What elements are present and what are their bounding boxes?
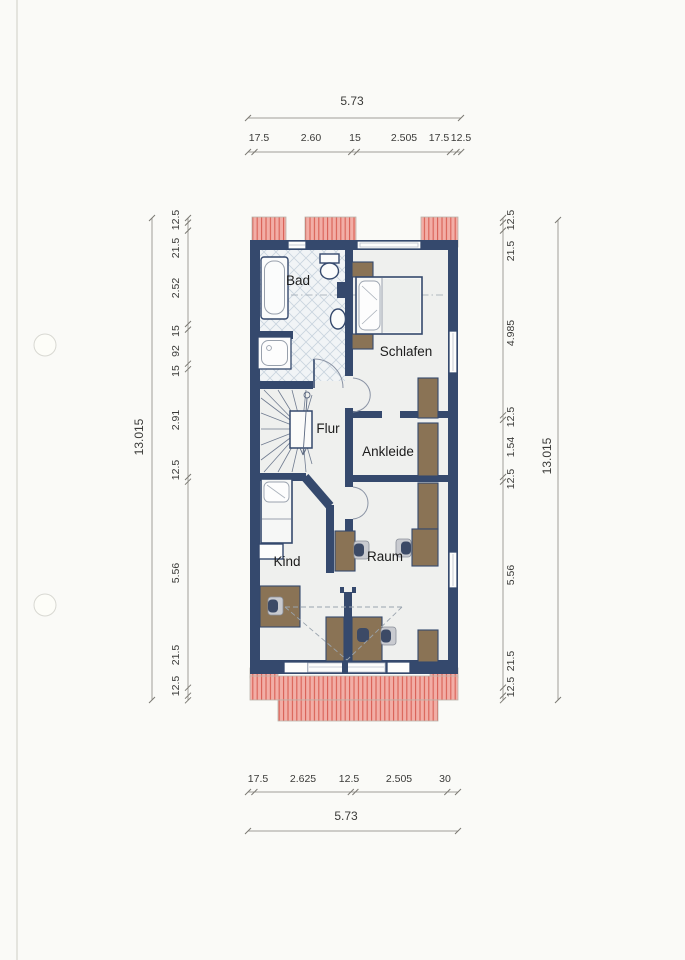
dim-label: 17.5 xyxy=(248,773,269,785)
nightstand-bottom xyxy=(352,334,373,349)
bed-blanket xyxy=(382,279,420,332)
wall-ankleide-south xyxy=(345,475,458,482)
nightstand-top xyxy=(352,262,373,277)
hole-punch-bottom xyxy=(34,594,56,616)
dim-label: 12.5 xyxy=(505,407,517,428)
wall-pier xyxy=(337,282,353,298)
wall-kind-raum xyxy=(326,505,334,573)
room-label-schlafen: Schlafen xyxy=(380,344,433,359)
dim-label: 92 xyxy=(170,345,182,357)
dim-total-left: 13.015 xyxy=(132,418,146,455)
partition-hook-right xyxy=(352,587,356,593)
room-label-raum: Raum xyxy=(367,549,403,564)
dim-label: 12.5 xyxy=(505,677,517,698)
wardrobe-ankleide xyxy=(418,423,438,476)
dim-label: 2.52 xyxy=(170,278,182,299)
dim-label: 21.5 xyxy=(505,241,517,262)
raum-chair-glyph xyxy=(357,628,369,642)
dim-label: 17.5 xyxy=(429,132,450,144)
dim-label: 12.5 xyxy=(170,676,182,697)
window-south-frame-right xyxy=(387,662,410,673)
raum-desk-center-chair xyxy=(381,627,396,645)
scanned-floor-plan-sheet: 5.73 17.5 2.60 15 2.505 17.5 12.5 13.015… xyxy=(0,0,685,960)
window-south-mullion xyxy=(342,661,348,674)
dim-label: 2.60 xyxy=(301,132,322,144)
partition-hook-left xyxy=(340,587,344,593)
dim-label: 12.5 xyxy=(170,460,182,481)
dim-total-right: 13.015 xyxy=(540,437,554,474)
dim-label: 5.56 xyxy=(505,565,517,586)
dim-label: 17.5 xyxy=(249,132,270,144)
dim-label: 1.54 xyxy=(505,437,517,458)
wall-raum-partition xyxy=(344,592,352,662)
bed-pillow xyxy=(359,281,380,330)
window-south-frame-left xyxy=(284,662,308,673)
wardrobe-raum-upper xyxy=(418,483,438,529)
roof-bottom-step xyxy=(278,700,438,721)
dimensions-left: 13.015 12.5 21.5 2.52 15 92 15 2.91 12.5… xyxy=(132,210,191,704)
dim-label: 21.5 xyxy=(170,238,182,259)
washbasin xyxy=(331,309,346,329)
dim-label: 15 xyxy=(349,132,361,144)
room-label-bad: Bad xyxy=(286,273,310,288)
dim-label: 2.505 xyxy=(386,773,412,785)
roof-bottom-band xyxy=(250,676,458,700)
dim-label: 15 xyxy=(170,365,182,377)
dimensions-right: 12.5 21.5 4.985 12.5 1.54 12.5 5.56 21.5… xyxy=(500,210,561,704)
raum-desk-east xyxy=(412,529,438,566)
dim-label: 30 xyxy=(439,773,451,785)
hole-punch-top xyxy=(34,334,56,356)
dim-label: 4.985 xyxy=(505,320,517,346)
dim-label: 12.5 xyxy=(170,210,182,231)
toilet-tank xyxy=(320,254,339,263)
dim-label: 12.5 xyxy=(505,210,517,231)
kind-desk-chair xyxy=(268,597,283,615)
dim-label: 12.5 xyxy=(451,132,472,144)
dim-total-top: 5.73 xyxy=(340,94,364,108)
wall-north xyxy=(250,240,458,250)
dim-label: 12.5 xyxy=(505,469,517,490)
dim-label: 21.5 xyxy=(505,651,517,672)
wall-west xyxy=(250,240,260,672)
wall-flur-ankleide xyxy=(345,408,353,475)
wall-stub-upper xyxy=(345,482,353,487)
room-label-flur: Flur xyxy=(316,421,340,436)
dimensions-top: 5.73 17.5 2.60 15 2.505 17.5 12.5 xyxy=(245,94,471,155)
dim-label: 2.625 xyxy=(290,773,316,785)
dim-label: 12.5 xyxy=(339,773,360,785)
stair-landing xyxy=(290,411,312,448)
shower-tray xyxy=(258,337,291,369)
dim-label: 2.91 xyxy=(170,410,182,431)
raum-desk-center-left xyxy=(326,617,344,661)
wardrobe-schlafen xyxy=(418,378,438,418)
wall-bad-south xyxy=(260,381,313,389)
floor-plan-drawing: 5.73 17.5 2.60 15 2.505 17.5 12.5 13.015… xyxy=(0,0,685,960)
dim-label: 2.505 xyxy=(391,132,417,144)
wall-east xyxy=(448,240,458,672)
dim-total-bottom: 5.73 xyxy=(334,809,358,823)
toilet-bowl xyxy=(321,263,339,279)
dim-label: 5.56 xyxy=(170,563,182,584)
dim-label: 21.5 xyxy=(170,645,182,666)
dimensions-bottom: 17.5 2.625 12.5 2.505 30 5.73 xyxy=(245,773,461,834)
room-label-kind: Kind xyxy=(273,554,300,569)
wardrobe-raum-lower xyxy=(418,630,438,662)
wall-ankleide-north-left xyxy=(353,411,382,418)
raum-desk-west xyxy=(335,531,355,571)
window-north-schlafen xyxy=(357,241,421,249)
dim-label: 15 xyxy=(170,325,182,337)
room-label-ankleide: Ankleide xyxy=(362,444,414,459)
